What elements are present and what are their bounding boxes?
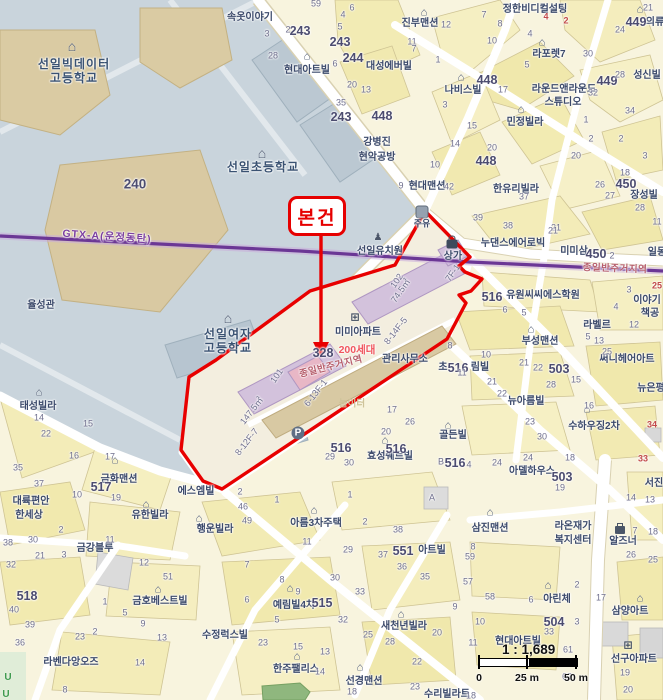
- building-label: 선구아파트: [611, 655, 657, 665]
- house-icon: ⌂: [528, 325, 535, 336]
- parcel-number: 3: [626, 286, 631, 295]
- building-label: 서진: [645, 479, 663, 489]
- scale-ratio: 1 : 1,689: [502, 642, 555, 657]
- parcel-number: 6: [332, 60, 337, 69]
- school-icon: ⌂: [68, 39, 76, 53]
- building-label: 삼양아트: [612, 607, 649, 617]
- parcel-number: 36: [15, 639, 25, 648]
- parcel-number: 5: [521, 309, 526, 318]
- parcel-number: 38: [503, 222, 513, 231]
- parcel-number: 9: [452, 603, 457, 612]
- parcel-number: 58: [485, 593, 495, 602]
- parcel-number: 1: [347, 491, 352, 500]
- parcel-number: 30: [330, 574, 340, 583]
- parcel-number-bold: 516: [386, 443, 407, 456]
- parcel-number-bold: 448: [476, 155, 497, 168]
- house-icon: ⌂: [294, 652, 301, 663]
- house-icon: ⌂: [196, 514, 203, 525]
- parcel-number: 2: [237, 488, 242, 497]
- parcel-number: 4: [543, 13, 548, 22]
- school-label: 고등학교: [204, 342, 252, 354]
- parcel-number: 14: [34, 414, 44, 423]
- building-label: 라온재가: [555, 522, 592, 532]
- building-label: 수정럭스빌: [202, 631, 248, 641]
- building-label: 유한빌라: [132, 511, 169, 521]
- parcel-number: 5: [122, 609, 127, 618]
- parcel-number: 16: [69, 452, 79, 461]
- parcel-number: 25: [602, 348, 612, 357]
- parcel-number: 11: [105, 536, 114, 545]
- parcel-number: 35: [336, 99, 346, 108]
- building-label: 스튜디오: [545, 98, 582, 108]
- parcel-number: 19: [111, 494, 121, 503]
- parcel-number: 8: [470, 543, 475, 552]
- scale-track: [479, 658, 578, 667]
- parcel-number: 59: [311, 0, 321, 9]
- parcel-number: 7: [411, 45, 416, 54]
- parcel-number: 18: [565, 454, 575, 463]
- park-area: [262, 683, 310, 700]
- parcel-number: 7: [244, 561, 249, 570]
- building-label: 한세상: [15, 511, 43, 521]
- parcel-number: 26: [595, 181, 605, 190]
- parcel-number: 14: [450, 140, 460, 149]
- parcel-number: 8: [279, 576, 284, 585]
- building-label: 라벨르: [583, 321, 611, 331]
- parcel-number: 35: [13, 464, 23, 473]
- parcel-number: 30: [583, 50, 593, 59]
- parcel-number: 17: [105, 453, 115, 462]
- parcel-number: 20: [347, 81, 357, 90]
- parcel-number: 30: [344, 459, 354, 468]
- parcel-number: 28: [268, 52, 278, 61]
- building-label: 수하우징2차: [568, 422, 620, 432]
- scale-bar: 1 : 1,689 0 25 m 50 m: [462, 642, 602, 692]
- building-label: 삼진맨션: [472, 524, 509, 534]
- house-icon: ⌂: [287, 584, 294, 595]
- building-label: 써니헤어아트: [599, 355, 654, 365]
- parcel-number: 57: [463, 578, 473, 587]
- parcel-number: 10: [487, 37, 497, 46]
- briefcase-icon: [615, 526, 625, 534]
- parcel-number: 5: [524, 61, 529, 70]
- parcel-number: 3: [264, 30, 269, 39]
- parcel-number-bold: 503: [549, 363, 570, 376]
- building-label: 정한비디컬설팅: [503, 5, 567, 15]
- parcel-number-bold: 449: [626, 16, 647, 29]
- building-label: 의류: [646, 18, 663, 28]
- parcel-number: 39: [473, 214, 483, 223]
- parcel-number: 25: [648, 556, 658, 565]
- building-label: 이야기: [633, 296, 661, 306]
- parcel-number: 14: [135, 659, 145, 668]
- parcel-number: 49: [242, 517, 252, 526]
- parcel-number: 38: [3, 539, 13, 548]
- parcel-number-bold: 243: [330, 36, 351, 49]
- parcel-number: 2: [58, 526, 63, 535]
- school-icon: ⌂: [258, 146, 266, 160]
- parcel-number: 30: [28, 536, 38, 545]
- parcel-number: 28: [546, 381, 556, 390]
- parcel-number: 33: [544, 628, 554, 637]
- parcel-number: 36: [397, 563, 407, 572]
- building-label: 라운드앤라운드: [532, 85, 596, 95]
- building-label: 한유리빌라: [493, 185, 539, 195]
- parcel-number: 59: [465, 553, 475, 562]
- parcel-number: 11: [457, 369, 466, 378]
- scale-tick: [478, 655, 480, 669]
- house-icon: ⌂: [545, 581, 552, 592]
- parcel-number: 10: [481, 351, 491, 360]
- scale-tick: [526, 655, 528, 669]
- parcel-number: 32: [338, 616, 348, 625]
- parcel-number: 12: [441, 21, 451, 30]
- parcel-number: 2: [574, 581, 579, 590]
- parcel-number-bold: 243: [331, 111, 352, 124]
- parcel-number: 10: [475, 618, 485, 627]
- parcel-number: 33: [355, 588, 365, 597]
- school-label: 선일여자: [204, 328, 252, 340]
- parcel-number: 9: [140, 620, 145, 629]
- parcel-number: 15: [571, 376, 581, 385]
- parcel-number: 15: [293, 643, 303, 652]
- parcel-number: 34: [647, 421, 657, 430]
- parcel-number: 13: [361, 86, 371, 95]
- parcel-number: 37: [378, 551, 388, 560]
- parcel-number: 21: [487, 378, 497, 387]
- building-label: 진부맨션: [402, 19, 439, 29]
- parcel-number-bold: 450: [586, 248, 607, 261]
- house-icon: ⌂: [357, 663, 364, 674]
- building-label: 나비스빌: [445, 86, 482, 96]
- building-label: 아린체: [543, 595, 571, 605]
- parcel-number: 22: [497, 390, 507, 399]
- building-label: 예림빌4차: [273, 601, 315, 611]
- parcel-number: 26: [626, 551, 636, 560]
- parcel-number: 34: [625, 107, 635, 116]
- parcel-number: 21: [519, 359, 529, 368]
- building-label: 상가: [444, 252, 462, 262]
- parcel-number: 23: [258, 639, 268, 648]
- building-label: 선일유치원: [357, 247, 403, 257]
- parcel-number-bold: 515: [312, 597, 333, 610]
- parcel-number: 19: [620, 669, 630, 678]
- parcel-number-bold: 516: [445, 457, 466, 470]
- parcel-number: 7: [632, 527, 637, 536]
- parcel-number: 17: [498, 86, 508, 95]
- parcel-number: 42: [444, 183, 454, 192]
- parcel-number: 2: [618, 135, 623, 144]
- parcel-number: 30: [537, 433, 547, 442]
- parcel-number: 17: [596, 594, 606, 603]
- scale-tick-label: 0: [476, 672, 482, 684]
- parcel-number: 37: [34, 480, 44, 489]
- parcel-number: 23: [410, 683, 420, 692]
- parcel-number-bold: 551: [393, 545, 414, 558]
- house-icon: ⌂: [304, 52, 311, 63]
- parcel-number: 16: [584, 402, 594, 411]
- parcel-number: 2: [285, 26, 290, 35]
- parcel-number: 15: [467, 122, 477, 131]
- parcel-number: 3: [61, 551, 66, 560]
- building-label: 미미아파트: [335, 328, 381, 338]
- house-icon: ⌂: [143, 500, 150, 511]
- house-icon: ⌂: [311, 506, 318, 517]
- parcel-number: 28: [615, 71, 625, 80]
- parcel-number: 20: [623, 686, 633, 695]
- building-label: 일동: [648, 248, 663, 258]
- parcel-number: 26: [405, 418, 415, 427]
- parcel-number: 29: [325, 453, 335, 462]
- parcel-number: A: [429, 494, 435, 503]
- parcel-number: 6: [244, 596, 249, 605]
- parcel-number: 10: [72, 491, 82, 500]
- parcel-number: 8: [497, 20, 502, 29]
- parcel-number-bold: 450: [616, 178, 637, 191]
- parcel-number: 20: [432, 629, 442, 638]
- parcel-number: 18: [347, 688, 357, 697]
- parcel-number: 32: [6, 561, 16, 570]
- parcel-number: 15: [83, 420, 93, 429]
- parcel-number: 2: [563, 17, 568, 26]
- parcel-number: 20: [571, 152, 581, 161]
- house-icon: ⌂: [487, 508, 494, 519]
- house-icon: ⌂: [155, 585, 162, 596]
- parcel-number-bold: 244: [343, 52, 364, 65]
- parcel-number: 4: [527, 30, 532, 39]
- house-icon: ⌂: [398, 610, 405, 621]
- building-label: 관리사무소: [382, 355, 428, 365]
- parcel-number: 13: [157, 634, 167, 643]
- parcel-number: 5: [337, 23, 342, 32]
- building-label: 대성에버빌: [366, 62, 412, 72]
- poi-label: 놀이터: [339, 399, 365, 409]
- parcel-number: 11: [652, 218, 661, 227]
- parcel-number-bold: 516: [482, 291, 503, 304]
- parcel-number: 28: [385, 638, 395, 647]
- building-label: 태성빌라: [20, 402, 57, 412]
- building-label: 미미삼: [560, 247, 588, 257]
- building-label: 현악공방: [359, 153, 396, 163]
- parking-icon: P: [292, 427, 305, 440]
- parcel-number: 46: [238, 503, 248, 512]
- map-canvas[interactable]: 선일빅데이터고등학교선일초등학교선일여자고등학교율성관속옷이야기현대아트빌진부맨…: [0, 0, 663, 700]
- house-icon: ⌂: [518, 105, 525, 116]
- parcel-number: 18: [620, 169, 630, 178]
- parcel-number: 27: [605, 192, 615, 201]
- parcel-number: 39: [25, 621, 35, 630]
- green-u-icon: U: [4, 673, 11, 683]
- parcel-number: 8: [447, 342, 452, 351]
- parcel-number-bold: 448: [477, 74, 498, 87]
- parcel-number: 21: [643, 4, 653, 13]
- parcel-number: 10: [430, 161, 440, 170]
- building-label: 속옷이야기: [227, 13, 273, 23]
- parcel-number-bold: 328: [313, 347, 334, 360]
- building-label: 새천년빌라: [381, 622, 427, 632]
- parcel-number: 23: [525, 418, 535, 427]
- parcel-number: 1: [102, 598, 107, 607]
- building-label: 뉴은평: [637, 384, 663, 394]
- annotation-label: 200세대: [339, 345, 376, 356]
- building-label: 부성맨션: [522, 337, 559, 347]
- building-label: 에스엠빌: [178, 487, 215, 497]
- building-label: 성신빌: [633, 71, 661, 81]
- pump-icon: [416, 206, 429, 219]
- parcel-number: 33: [638, 455, 648, 464]
- building-label: 현대아트빌: [284, 66, 330, 76]
- subject-callout-label: 본건: [298, 203, 337, 230]
- parcel-number: 22: [533, 364, 543, 373]
- parcel-number: 29: [343, 546, 353, 555]
- building-label: 선경맨션: [346, 677, 383, 687]
- parcel-number: 12: [629, 321, 639, 330]
- parcel-number: 23: [75, 633, 85, 642]
- parcel-number: 1: [583, 116, 588, 125]
- scale-tick-label: 25 m: [515, 672, 539, 684]
- parcel-number: 13: [320, 648, 330, 657]
- house-icon: ⌂: [637, 594, 644, 605]
- apartment-icon: ⊞: [350, 313, 359, 324]
- parcel-number: 2: [609, 252, 614, 261]
- parcel-number: 51: [163, 573, 173, 582]
- parcel-number-bold: 517: [91, 481, 112, 494]
- building-label: 골든빌: [439, 431, 467, 441]
- parcel-number: 1: [435, 56, 440, 65]
- parcel-number-bold: 240: [124, 177, 147, 191]
- parcel-number: 4: [466, 461, 471, 470]
- parcel-number: 3: [574, 618, 579, 627]
- parcel-number: 22: [41, 430, 51, 439]
- parcel-number: 35: [420, 573, 430, 582]
- school-label: 선일초등학교: [227, 161, 299, 173]
- parcel-number: 24: [523, 454, 533, 463]
- school-icon: ⌂: [224, 311, 232, 325]
- parcel-number: 4: [340, 11, 345, 20]
- building-label: 대륙편안: [13, 497, 50, 507]
- parcel-number: 3: [642, 152, 647, 161]
- parcel-number: 14: [315, 668, 325, 677]
- building-label: 아델하우스: [509, 467, 555, 477]
- parcel-number: 2: [92, 628, 97, 637]
- building-label: 아트빌: [418, 546, 446, 556]
- building-label: 림빌: [471, 363, 489, 373]
- house-icon: ⌂: [36, 388, 43, 399]
- parcel-number-bold: 243: [290, 25, 311, 38]
- parcel-number: B: [438, 458, 444, 467]
- parcel-number: 24: [615, 26, 625, 35]
- parcel-number: 19: [555, 484, 565, 493]
- parcel-number: 40: [9, 606, 19, 615]
- parcel-number: 7: [481, 11, 486, 20]
- school-label: 선일빅데이터: [38, 58, 110, 70]
- parcel-number: 2: [362, 518, 367, 527]
- house-icon: ⌂: [539, 38, 546, 49]
- building-label: 라포렛7: [532, 50, 565, 60]
- parcel-number: 37: [519, 193, 529, 202]
- parcel-number: 5: [585, 333, 590, 342]
- subject-callout: 본건: [288, 196, 346, 236]
- parcel-number: 28: [635, 204, 645, 213]
- house-icon: ⌂: [458, 73, 465, 84]
- building-label: 책공: [641, 309, 659, 319]
- parcel-number: 32: [588, 89, 598, 98]
- building-label: 행운빌라: [197, 525, 234, 535]
- parcel-number: 24: [492, 459, 502, 468]
- parcel-number: 5: [274, 616, 279, 625]
- parcel-number: 25: [363, 631, 373, 640]
- building-label: 주유: [414, 220, 431, 229]
- building-label: 금호베스트빌: [132, 597, 187, 607]
- parcel-number: 11: [302, 538, 311, 547]
- parcel-number: 8: [62, 686, 67, 695]
- building-label: 라벤다앙오즈: [43, 658, 98, 668]
- school-label: 고등학교: [50, 72, 98, 84]
- building-label: 누댄스에어로빅: [481, 239, 545, 249]
- parcel-number: 6: [502, 306, 507, 315]
- building-label: 한주팰리스: [273, 665, 319, 675]
- parcel-number: 20: [487, 144, 497, 153]
- shop-icon: [447, 240, 458, 249]
- parcel-number: 21: [548, 227, 558, 236]
- parcel-number: 1: [274, 496, 279, 505]
- parcel-number: 6: [528, 596, 533, 605]
- parcel-number: 21: [35, 552, 45, 561]
- building-label: 강병진: [363, 138, 391, 148]
- parcel-number: 3: [442, 101, 447, 110]
- building-label: 금강블루: [77, 544, 114, 554]
- parcel-number-bold: 503: [552, 471, 573, 484]
- person-icon: ♟: [374, 233, 383, 243]
- building-label: 장성빌: [630, 191, 658, 201]
- parcel-number: 12: [139, 559, 149, 568]
- house-icon: ⌂: [421, 8, 428, 19]
- building-label: 현대맨션: [409, 182, 446, 192]
- building-label: 유원씨씨에스학원: [506, 291, 580, 301]
- parcel-number: 2: [588, 135, 593, 144]
- parcel-number: 9: [295, 588, 300, 597]
- parcel-number: 18: [648, 528, 658, 537]
- apartment-icon: ⊞: [623, 641, 632, 652]
- zoning-label: 종일반주거지역: [583, 263, 648, 275]
- parcel-number-bold: 448: [372, 110, 393, 123]
- parcel-number: 9: [398, 182, 403, 191]
- parcel-number: 25: [652, 282, 662, 291]
- scale-tick-label: 50 m: [564, 672, 588, 684]
- parcel-number: 20: [381, 428, 391, 437]
- parcel-number: 13: [645, 496, 655, 505]
- building-label: 초: [438, 363, 447, 373]
- parcel-number: 14: [626, 494, 636, 503]
- building-label: 아름3차주택: [290, 519, 342, 529]
- parcel-number-bold: 518: [17, 590, 38, 603]
- building-label: 복지센터: [555, 536, 592, 546]
- building-label: 율성관: [27, 301, 55, 311]
- scale-tick: [575, 655, 577, 669]
- building-label: 뉴아름빌: [508, 397, 545, 407]
- parcel-number: 6: [349, 4, 354, 13]
- parcel-number: 17: [387, 406, 397, 415]
- parcel-number: 13: [594, 337, 604, 346]
- parcel-number: 18: [466, 692, 476, 700]
- building-label: 민정빌라: [507, 118, 544, 128]
- parcel-number: 22: [412, 658, 422, 667]
- parcel-number: 4: [613, 303, 618, 312]
- parcel-number: 38: [393, 526, 403, 535]
- green-u-icon: U: [2, 690, 9, 700]
- building-label: 알즈너: [609, 537, 637, 547]
